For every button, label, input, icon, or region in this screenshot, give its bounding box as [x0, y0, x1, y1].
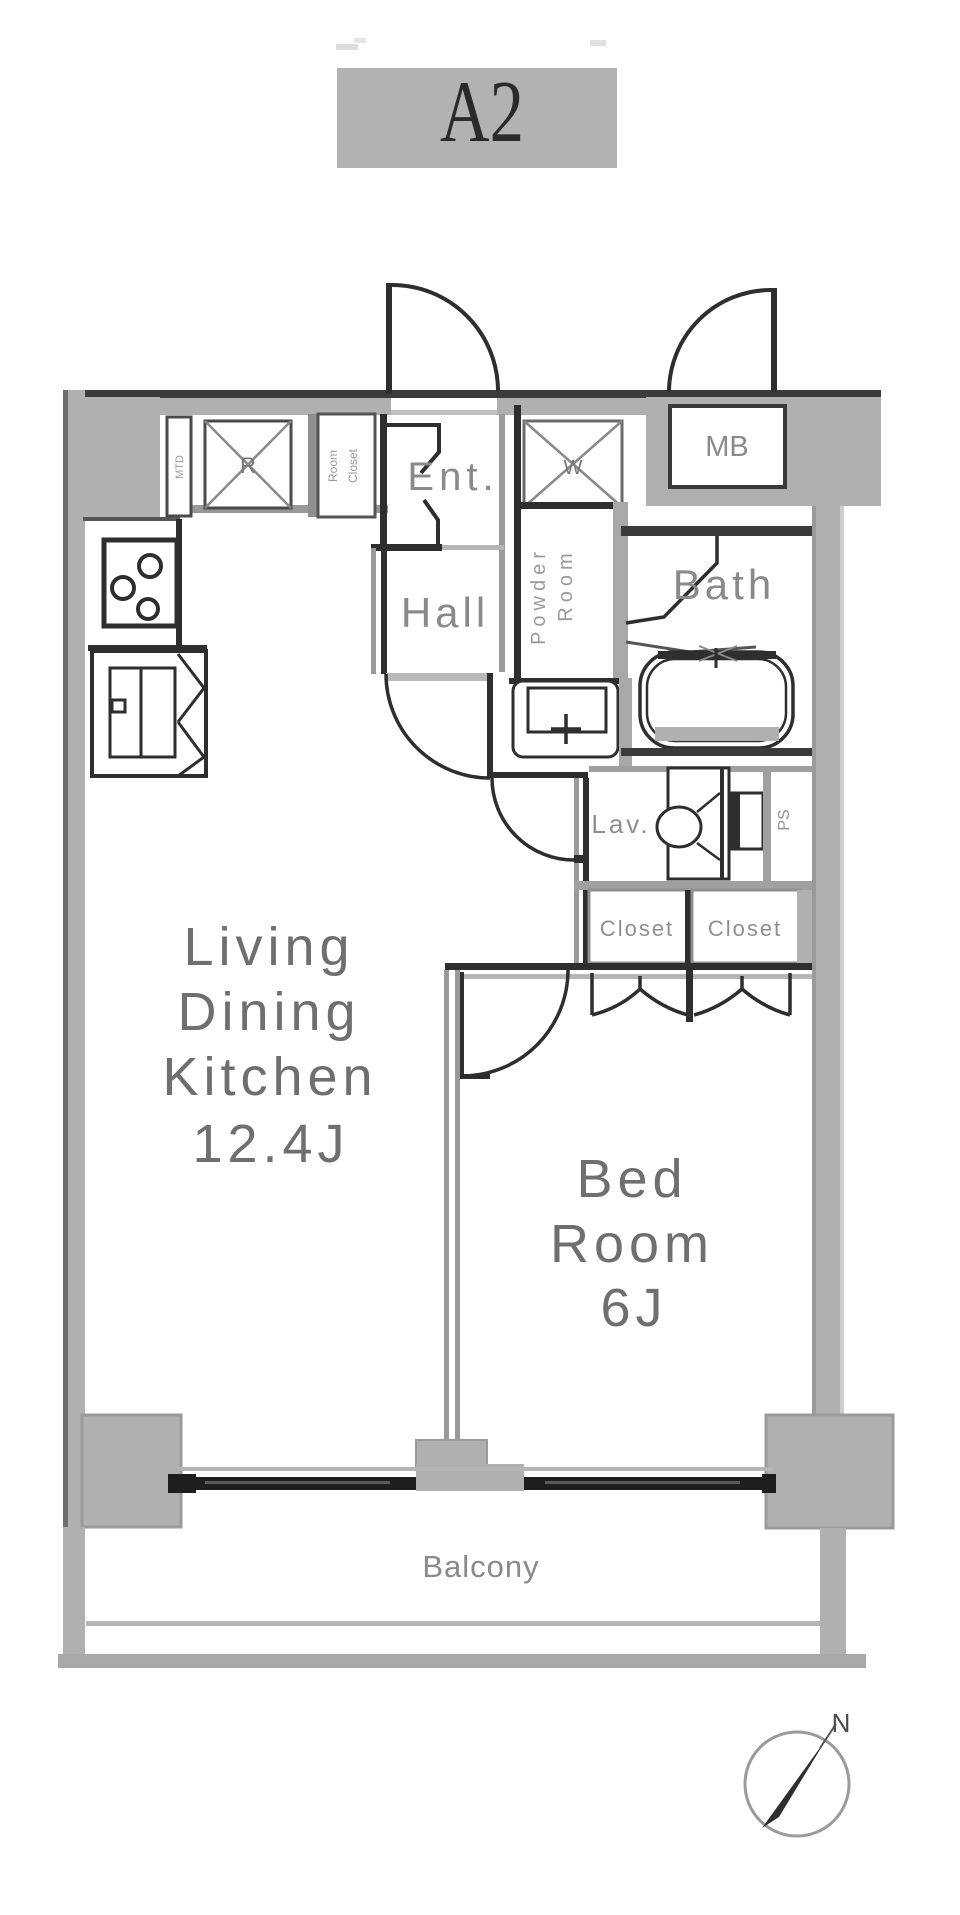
svg-text:Balcony: Balcony [422, 1549, 539, 1584]
svg-text:Closet: Closet [346, 448, 360, 483]
svg-text:Lav.: Lav. [591, 809, 650, 839]
svg-text:MB: MB [705, 431, 749, 463]
svg-text:A2: A2 [440, 64, 524, 161]
svg-text:Room: Room [326, 450, 340, 482]
svg-text:W: W [564, 457, 583, 479]
svg-text:N: N [832, 1708, 851, 1738]
svg-text:Bed: Bed [576, 1149, 687, 1209]
svg-text:Powder: Powder [528, 547, 550, 645]
svg-text:Room: Room [550, 1214, 714, 1274]
svg-text:R: R [240, 453, 256, 478]
svg-text:6J: 6J [600, 1278, 667, 1338]
svg-text:Bath: Bath [673, 561, 775, 608]
svg-text:Kitchen: Kitchen [162, 1047, 377, 1107]
svg-text:Room: Room [555, 548, 577, 621]
svg-text:Closet: Closet [600, 916, 674, 941]
svg-text:12.4J: 12.4J [192, 1114, 349, 1174]
svg-text:Closet: Closet [708, 916, 782, 941]
svg-text:Living: Living [183, 917, 354, 977]
svg-text:Ent.: Ent. [407, 455, 498, 499]
svg-text:Hall: Hall [401, 589, 489, 636]
svg-text:PS: PS [776, 809, 793, 830]
svg-text:Dining: Dining [177, 982, 360, 1042]
svg-text:MTD: MTD [174, 455, 186, 479]
